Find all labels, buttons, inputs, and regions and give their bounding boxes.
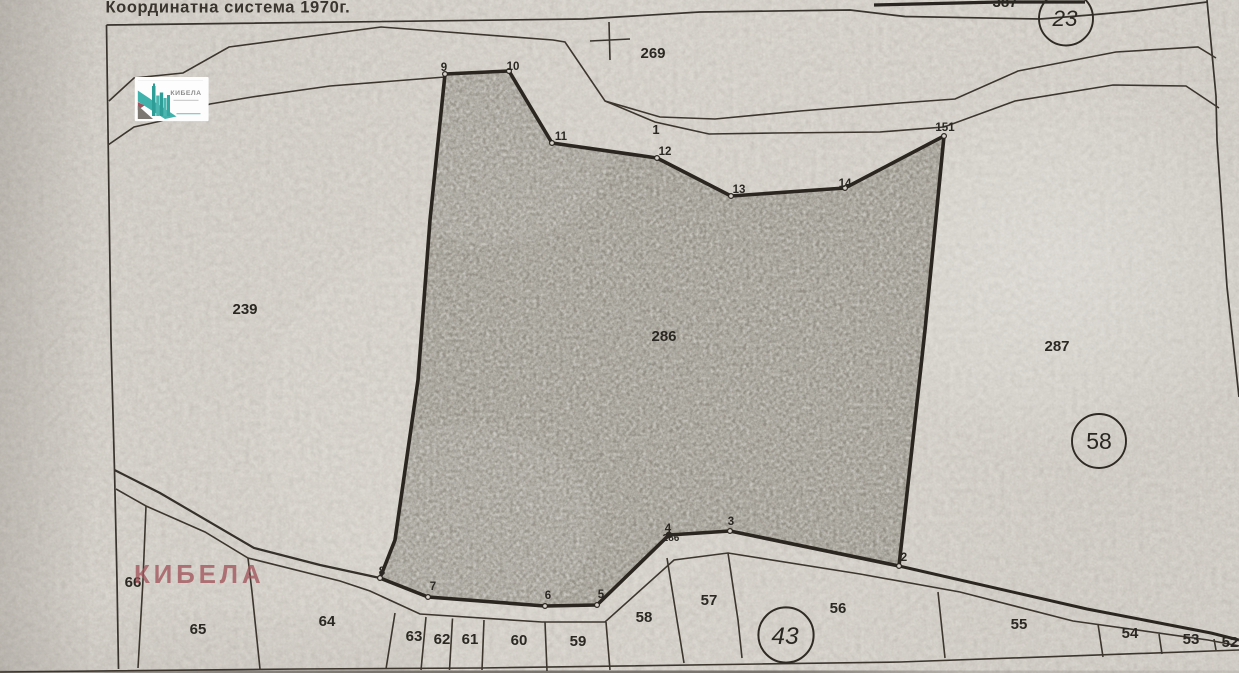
svg-text:11: 11	[555, 131, 568, 143]
svg-text:5: 5	[598, 589, 605, 601]
svg-text:52: 52	[1222, 634, 1239, 651]
svg-text:59: 59	[570, 633, 587, 650]
svg-text:62: 62	[434, 631, 451, 648]
svg-text:КИБЕЛА: КИБЕЛА	[134, 559, 264, 589]
svg-text:9: 9	[441, 62, 447, 74]
svg-text:64: 64	[319, 613, 336, 630]
svg-text:14: 14	[839, 178, 852, 190]
svg-text:10: 10	[507, 61, 520, 73]
svg-text:56: 56	[830, 600, 847, 617]
svg-text:13: 13	[733, 184, 746, 196]
svg-text:61: 61	[462, 631, 479, 648]
svg-text:Координатна система 1970г.: Координатна система 1970г.	[106, 0, 351, 17]
svg-text:58: 58	[636, 609, 653, 626]
svg-text:43: 43	[771, 623, 799, 650]
svg-text:53: 53	[1183, 631, 1200, 648]
svg-text:2: 2	[901, 552, 907, 564]
svg-text:6: 6	[545, 590, 551, 602]
svg-text:КИБЕЛА: КИБЕЛА	[170, 90, 201, 97]
svg-text:3: 3	[728, 516, 734, 528]
svg-text:287: 287	[1044, 338, 1069, 355]
svg-text:387: 387	[992, 0, 1017, 11]
svg-text:151: 151	[935, 122, 955, 134]
svg-text:55: 55	[1011, 616, 1028, 633]
svg-text:239: 239	[232, 301, 257, 318]
svg-text:12: 12	[659, 146, 672, 158]
svg-text:65: 65	[190, 621, 207, 638]
svg-text:58: 58	[1086, 428, 1112, 454]
svg-text:54: 54	[1122, 625, 1139, 642]
svg-text:286: 286	[651, 328, 676, 345]
svg-text:269: 269	[640, 45, 665, 62]
svg-text:60: 60	[511, 632, 528, 649]
svg-text:7: 7	[430, 581, 436, 593]
svg-text:1: 1	[652, 122, 659, 137]
svg-text:63: 63	[406, 628, 423, 645]
svg-text:286: 286	[663, 533, 680, 544]
svg-text:8: 8	[379, 566, 386, 578]
svg-text:23: 23	[1051, 6, 1078, 31]
svg-text:57: 57	[701, 592, 718, 609]
